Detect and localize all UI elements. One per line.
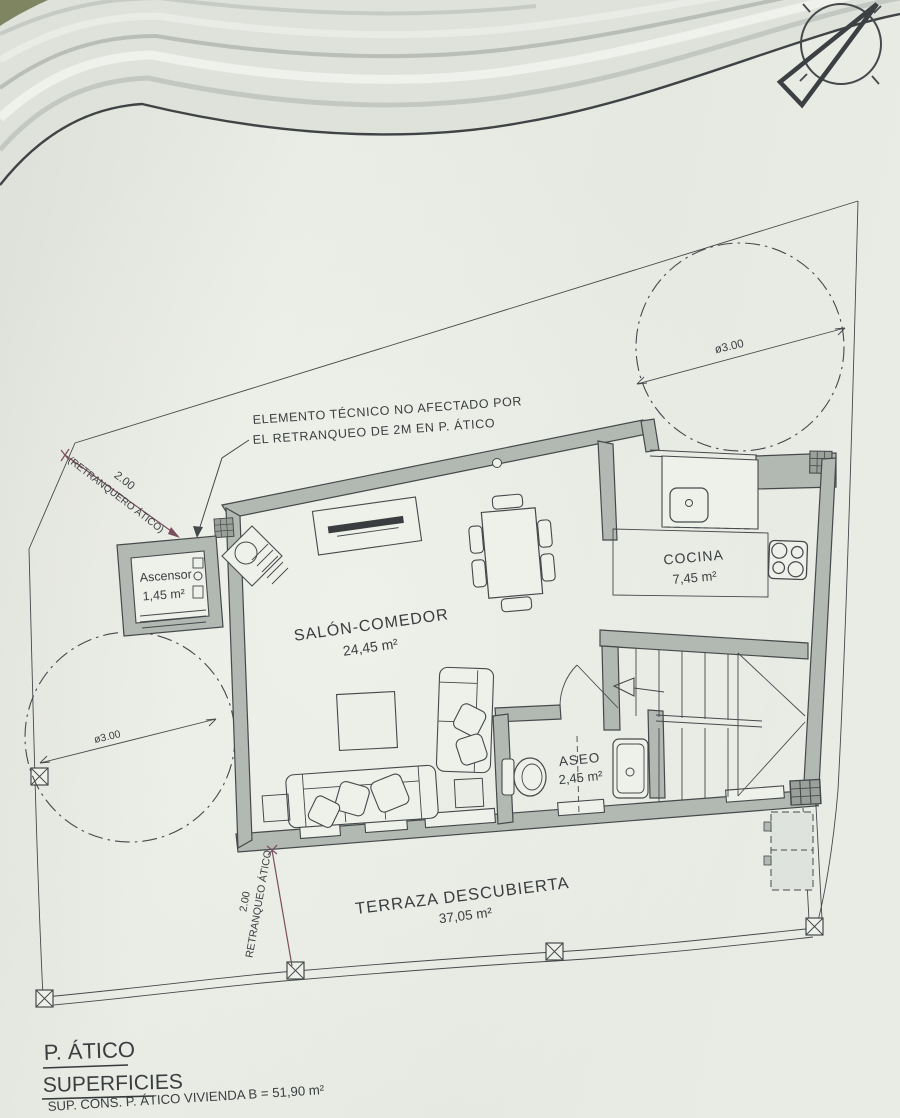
grid-column-marker bbox=[214, 518, 234, 538]
planter bbox=[771, 812, 813, 890]
washbasin-icon bbox=[613, 739, 648, 798]
column-post bbox=[287, 962, 304, 979]
floor-plan-drawing: ø3.00 ø3.00 bbox=[0, 0, 900, 1118]
column-post bbox=[31, 768, 48, 785]
stove-icon bbox=[768, 540, 807, 579]
column-post bbox=[36, 990, 53, 1007]
scanned-floor-plan-photo: ø3.00 ø3.00 bbox=[0, 0, 900, 1118]
column-post bbox=[546, 943, 563, 960]
sofa-vertical bbox=[436, 667, 494, 773]
plan-title: P. ÁTICO bbox=[43, 1037, 135, 1065]
room-area-ascensor: 1,45 m² bbox=[142, 587, 185, 604]
toilet-icon bbox=[502, 758, 546, 796]
column-post bbox=[806, 918, 823, 935]
grid-column-marker bbox=[790, 779, 821, 805]
